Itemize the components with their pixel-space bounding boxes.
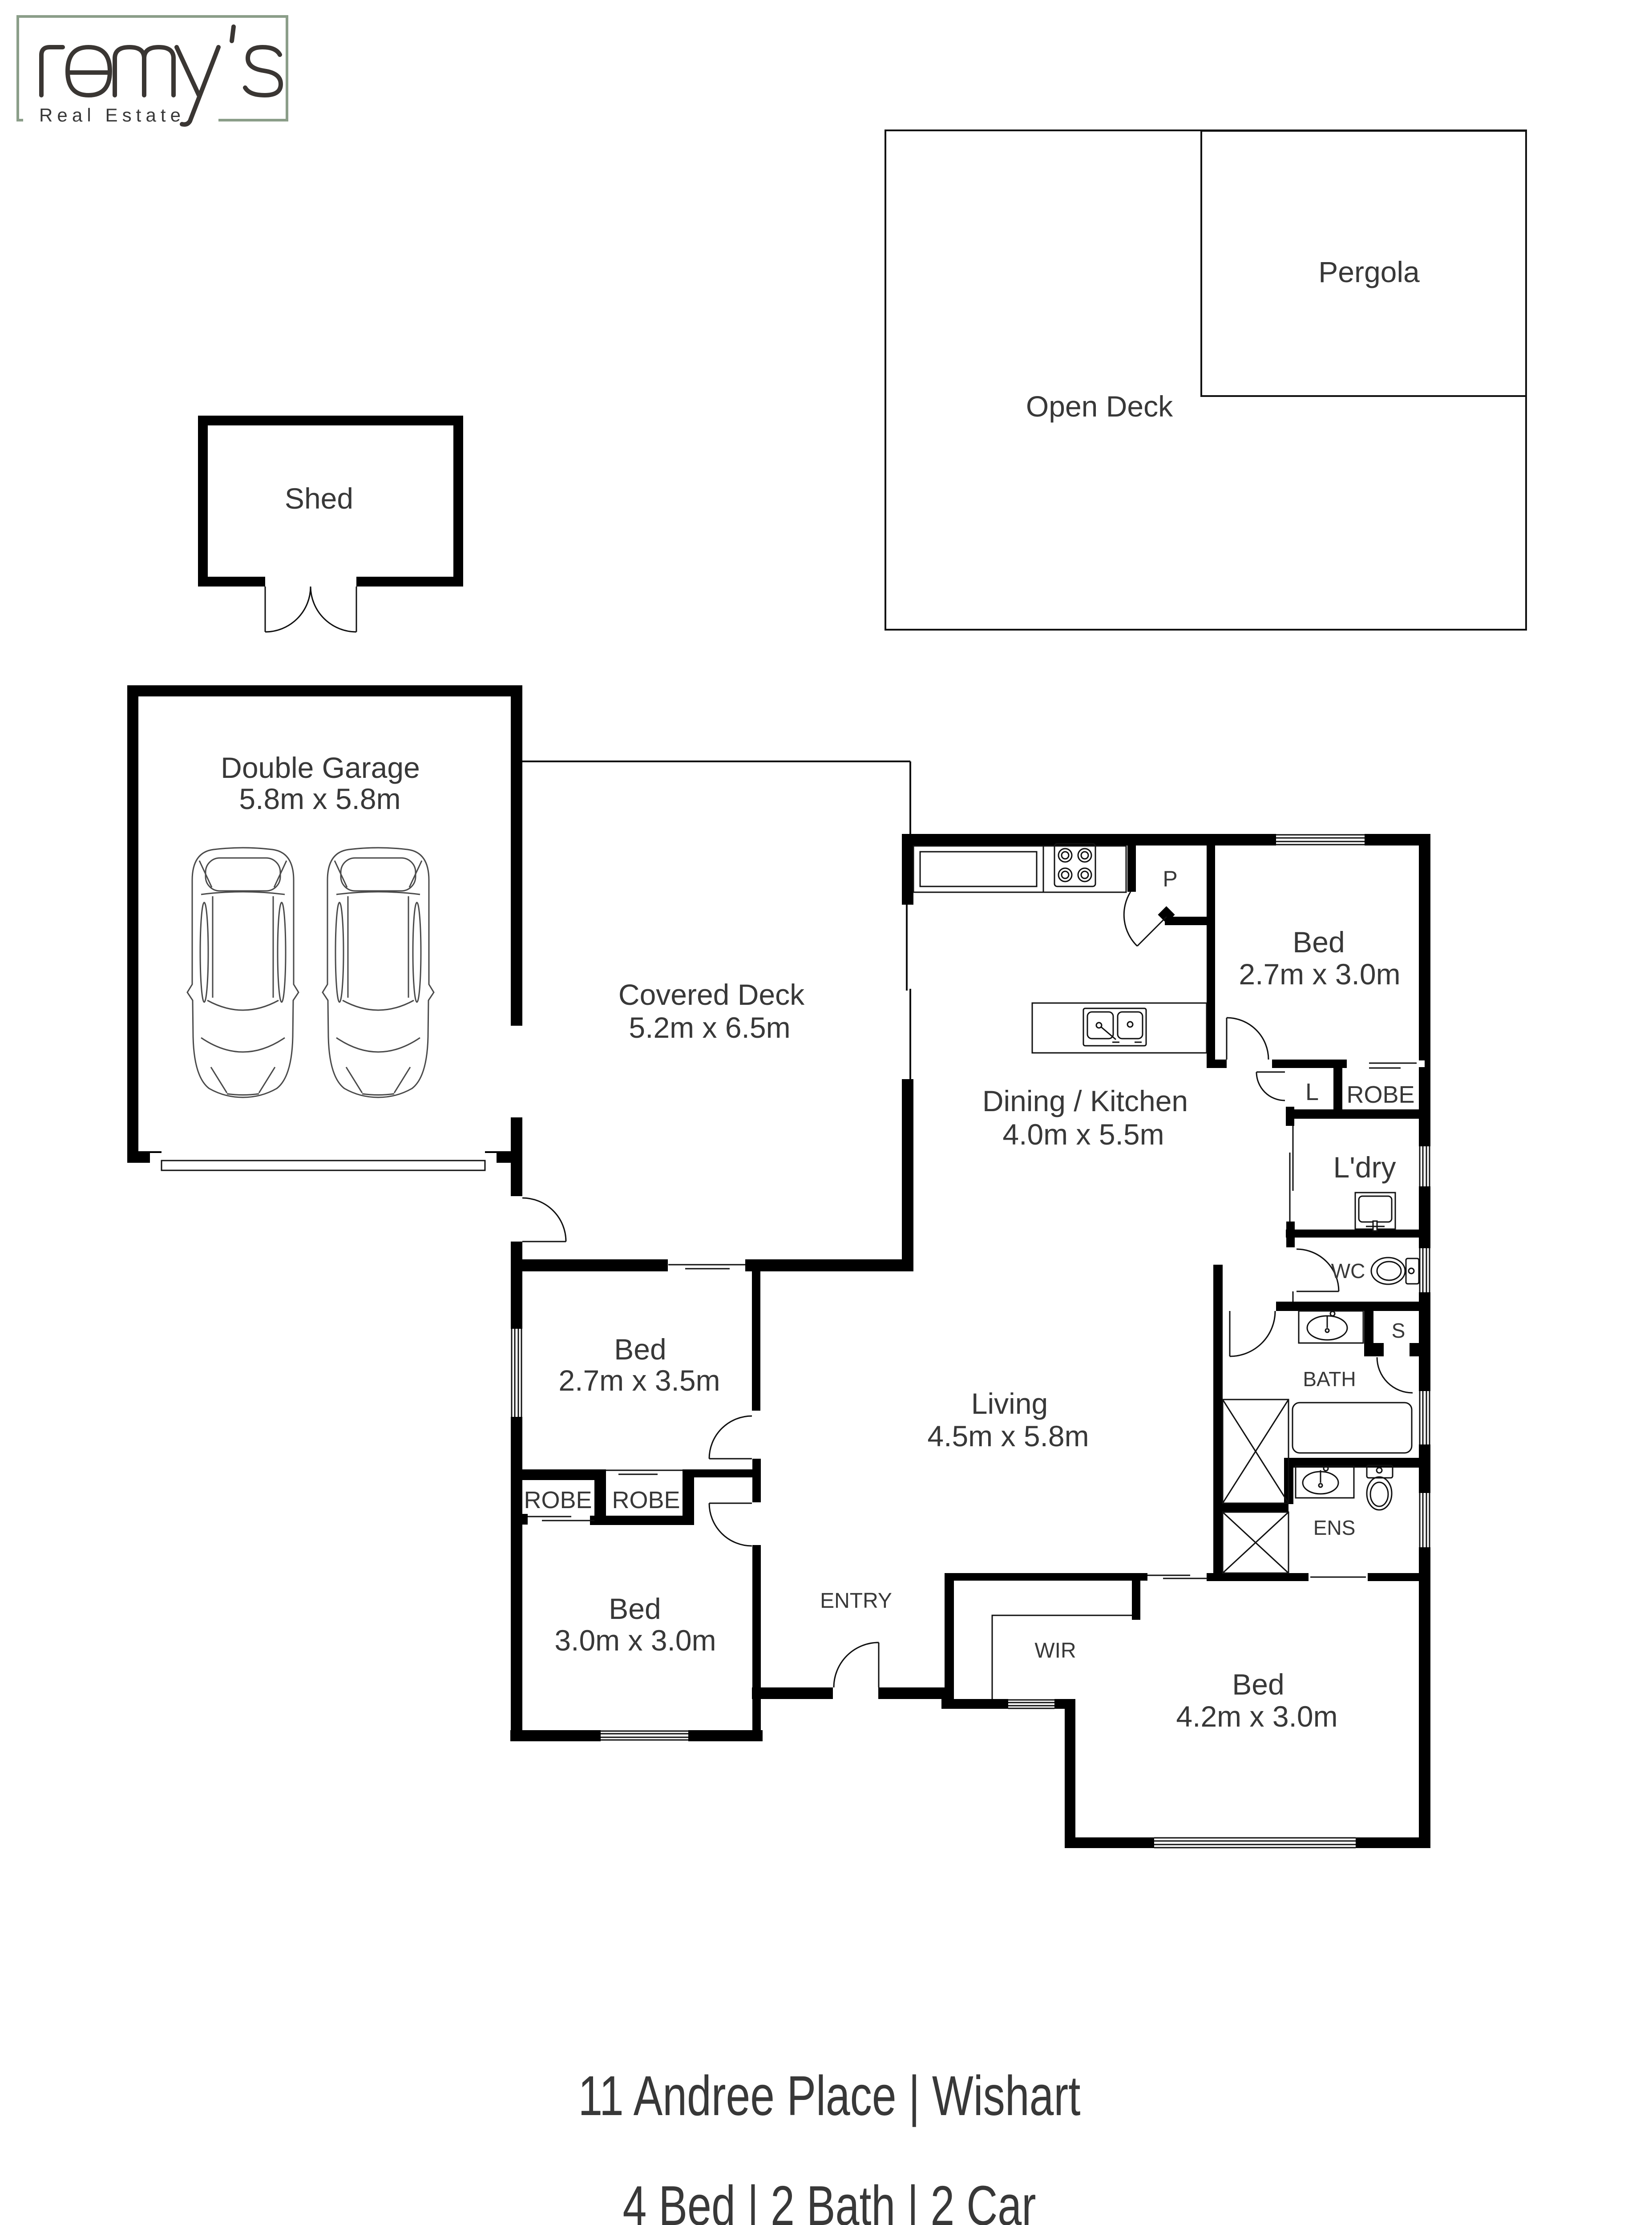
svg-text:P: P [1163,866,1177,891]
svg-text:Covered Deck: Covered Deck [618,978,805,1011]
svg-text:WC: WC [1331,1259,1365,1282]
svg-text:Pergola: Pergola [1318,255,1420,288]
svg-text:Shed: Shed [285,482,353,515]
svg-text:4.2m x 3.0m: 4.2m x 3.0m [1176,1700,1337,1733]
svg-text:Bed: Bed [1232,1668,1284,1701]
svg-text:L: L [1305,1079,1319,1105]
svg-text:ENTRY: ENTRY [820,1589,892,1613]
svg-text:2.7m x 3.0m: 2.7m x 3.0m [1239,958,1400,991]
svg-text:S: S [1392,1319,1406,1342]
svg-text:L'dry: L'dry [1333,1151,1396,1184]
svg-text:ROBE: ROBE [612,1487,680,1513]
svg-text:Bed: Bed [609,1592,661,1625]
svg-text:3.0m x 3.0m: 3.0m x 3.0m [554,1624,716,1657]
svg-text:WIR: WIR [1034,1639,1076,1663]
svg-text:4 Bed | 2 Bath | 2 Car: 4 Bed | 2 Bath | 2 Car [623,2174,1036,2225]
svg-text:Bed: Bed [614,1333,666,1366]
svg-text:ROBE: ROBE [1346,1081,1414,1108]
svg-text:Open Deck: Open Deck [1026,390,1173,423]
svg-text:5.8m x 5.8m: 5.8m x 5.8m [239,782,400,815]
svg-text:ROBE: ROBE [524,1487,592,1513]
svg-text:Dining / Kitchen: Dining / Kitchen [982,1084,1188,1117]
svg-text:2.7m x 3.5m: 2.7m x 3.5m [558,1364,720,1397]
svg-text:Bed: Bed [1293,926,1345,959]
svg-text:4.0m x 5.5m: 4.0m x 5.5m [1002,1118,1164,1151]
svg-text:4.5m x 5.8m: 4.5m x 5.8m [927,1420,1089,1452]
svg-text:Double Garage: Double Garage [221,751,420,784]
svg-text:5.2m x 6.5m: 5.2m x 6.5m [629,1011,790,1044]
svg-text:BATH: BATH [1303,1367,1356,1391]
svg-text:Real Estate: Real Estate [39,105,186,125]
svg-text:ENS: ENS [1313,1516,1356,1539]
svg-text:Living: Living [971,1387,1048,1420]
svg-text:11 Andree Place | Wishart: 11 Andree Place | Wishart [578,2064,1081,2127]
